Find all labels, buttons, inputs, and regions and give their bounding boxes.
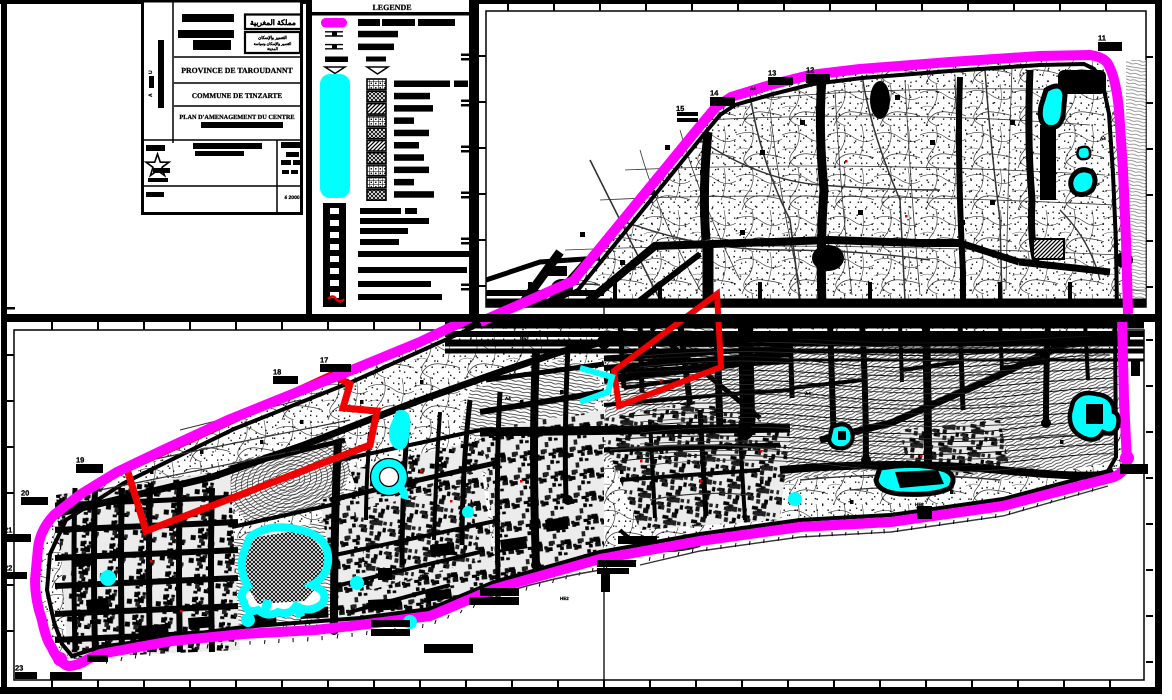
svg-text:é 2000: é 2000 bbox=[284, 195, 300, 201]
svg-text:مملكة المغربية: مملكة المغربية bbox=[250, 18, 296, 27]
svg-text:14: 14 bbox=[710, 89, 719, 98]
svg-text:13: 13 bbox=[768, 69, 776, 78]
svg-text:HE2: HE2 bbox=[430, 546, 439, 551]
svg-text:18: 18 bbox=[273, 368, 281, 377]
svg-text:NE2: NE2 bbox=[520, 336, 529, 341]
svg-text:HE2: HE2 bbox=[560, 596, 569, 601]
svg-text:A: A bbox=[148, 93, 154, 97]
svg-text:HE2: HE2 bbox=[915, 502, 924, 507]
svg-text:20: 20 bbox=[21, 489, 29, 498]
svg-text:12: 12 bbox=[806, 66, 814, 75]
svg-text:NE: NE bbox=[630, 266, 636, 271]
svg-text:COMMUNE DE TINZARTE: COMMUNE DE TINZARTE bbox=[192, 92, 282, 100]
svg-text:23: 23 bbox=[15, 664, 23, 673]
svg-text:15: 15 bbox=[676, 104, 684, 113]
svg-text:PLAN D'AMENAGEMENT DU CENTRE: PLAN D'AMENAGEMENT DU CENTRE bbox=[179, 114, 294, 121]
svg-text:HE2: HE2 bbox=[755, 341, 764, 346]
svg-text:LEGENDE: LEGENDE bbox=[372, 3, 411, 12]
svg-text:11: 11 bbox=[1098, 34, 1106, 43]
svg-text:التعمير والإسكان وسياسة: التعمير والإسكان وسياسة bbox=[254, 42, 291, 46]
svg-text:A4: A4 bbox=[505, 396, 511, 401]
svg-text:A4: A4 bbox=[750, 86, 756, 91]
svg-text:19: 19 bbox=[76, 456, 84, 465]
svg-text:HE1: HE1 bbox=[700, 426, 709, 431]
svg-text:16: 16 bbox=[546, 258, 554, 267]
svg-text:المدينة: المدينة bbox=[267, 47, 278, 51]
svg-text:PROVINCE DE TAROUDANNT: PROVINCE DE TAROUDANNT bbox=[181, 66, 293, 75]
svg-text:A4: A4 bbox=[805, 391, 811, 396]
svg-text:A4: A4 bbox=[650, 326, 656, 331]
svg-text:A4: A4 bbox=[660, 296, 666, 301]
svg-text:U: U bbox=[148, 70, 154, 74]
svg-text:A3: A3 bbox=[285, 451, 291, 456]
svg-text:A4: A4 bbox=[1100, 136, 1106, 141]
svg-text:17: 17 bbox=[320, 356, 328, 365]
